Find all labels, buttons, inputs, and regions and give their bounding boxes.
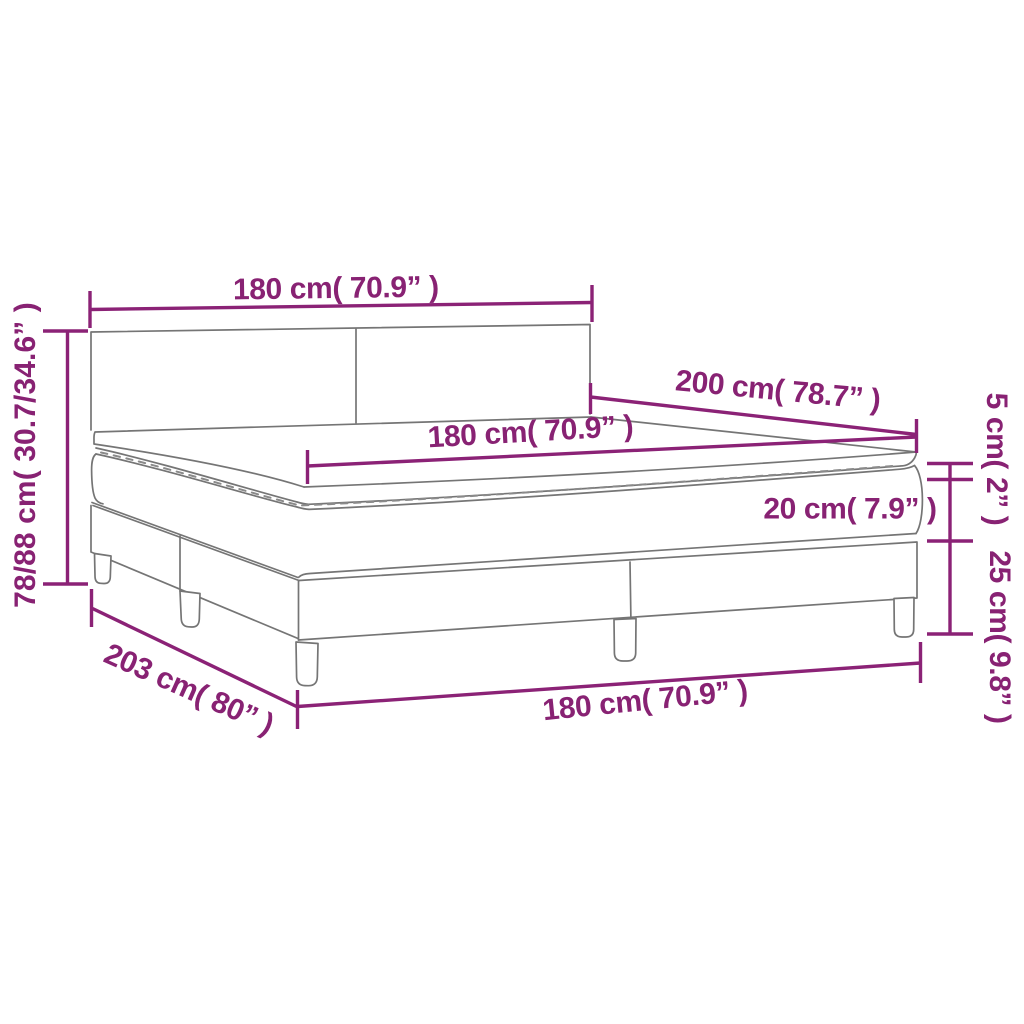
svg-text:180 cm( 70.9” ): 180 cm( 70.9” ) <box>233 271 439 307</box>
svg-text:78/88 cm( 30.7/34.6” ): 78/88 cm( 30.7/34.6” ) <box>9 302 42 608</box>
svg-text:5 cm( 2” ): 5 cm( 2” ) <box>980 393 1013 526</box>
svg-text:25 cm( 9.8” ): 25 cm( 9.8” ) <box>983 550 1016 723</box>
svg-text:20 cm( 7.9” ): 20 cm( 7.9” ) <box>763 493 936 526</box>
